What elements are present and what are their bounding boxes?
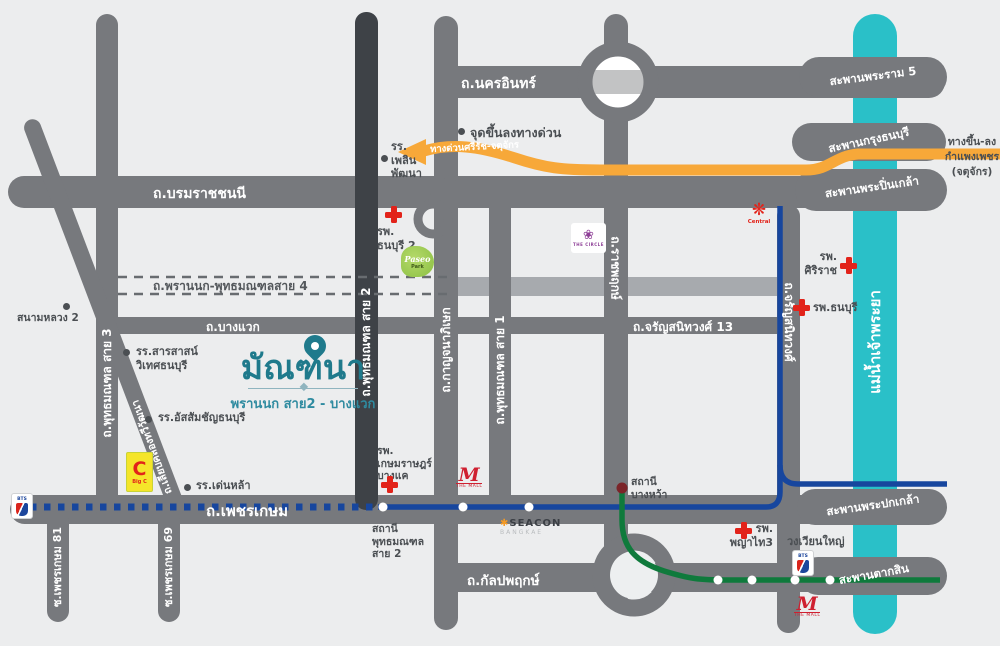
label-road-charan-sanitwong: ถ.จรัญสนิทวงศ์ [781, 247, 797, 397]
hospital-cross-thonburi2-icon [385, 206, 402, 223]
brand-subtitle: พรานนก สาย2 - บางแวก [228, 393, 378, 414]
label-sanam-luang2: สนามหลวง 2 [17, 312, 79, 326]
expressway-entry-dot [458, 128, 465, 135]
label-road-phutthamonthon-sai3: ถ.พุทธมณฑล สาย 3 [99, 291, 115, 475]
label-road-borommaratchachonnani: ถ.บรมราชชนนี [153, 183, 246, 205]
brand-divider [248, 388, 358, 389]
the-mall-thaphra-logo: M THE MALL [794, 597, 820, 618]
label-road-soi-phetkasem-69: ซ.เพชรเกษม 69 [161, 513, 177, 621]
label-road-kanchanaphisek: ถ.กาญจนาภิเษก [438, 255, 454, 445]
seacon-bangkae-logo: ✱SEACON BANGKAE [500, 518, 561, 536]
label-denla-school: รร.เด่นหล้า [196, 479, 251, 493]
label-station-phutthamonthon-sai2: สถานีพุทธมณฑลสาย 2 [372, 523, 424, 561]
paseo-park-logo: Paseo Park [401, 246, 434, 277]
mrt-station-logo: BTS [11, 493, 33, 519]
label-road-charan-sanitwong-13: ถ.จรัญสนิทวงศ์ 13 [633, 318, 733, 337]
label-road-phutthamonthon-sai1: ถ.พุทธมณฑล สาย 1 [492, 280, 508, 460]
label-expressway-entry: จุดขึ้นลงทางด่วน [470, 123, 561, 143]
transit-emblem-icon [797, 560, 809, 573]
label-plearn-school: รร.เพลินพัฒนา [391, 140, 422, 181]
label-road-bang-waek: ถ.บางแวก [206, 318, 260, 337]
hospital-cross-siriraj-icon [840, 257, 857, 274]
label-station-bang-wa: สถานีบางหว้า [631, 476, 667, 501]
label-road-nakhon-in: ถ.นครอินทร์ [461, 73, 536, 95]
label-road-phetkasem: ถ.เพชรเกษม [206, 499, 288, 523]
label-hospital-siriraj: รพ.ศิริราช [799, 250, 837, 277]
central-logo: ❋ Central [746, 202, 772, 225]
big-c-logo: C Big C [126, 452, 153, 492]
label-road-soi-phetkasem-81: ซ.เพชรเกษม 81 [50, 513, 66, 621]
flower-icon: ❀ [583, 229, 594, 242]
label-sarasas-school: รร.สารสาสน์วิเทศธนบุรี [136, 345, 198, 372]
label-road-phran-nok-sai4: ถ.พรานนก-พุทธมณฑลสาย 4 [153, 277, 308, 296]
label-hospital-thonburi: รพ.ธนบุรี [813, 301, 857, 315]
denla-school-dot [184, 484, 191, 491]
label-road-kanlapaphruek: ถ.กัลปพฤกษ์ [467, 569, 539, 591]
plearn-school-dot [381, 155, 388, 162]
assumption-school-dot [145, 416, 152, 423]
hospital-cross-thonburi-icon [793, 299, 810, 316]
the-circle-logo: ❀ THE CIRCLE [571, 223, 606, 253]
starburst-icon: ❋ [746, 202, 772, 219]
sarasas-school-dot [123, 349, 130, 356]
sanam-luang2-dot [63, 303, 70, 310]
seacon-star-icon: ✱ [500, 518, 509, 529]
hospital-cross-kasemrad-icon [381, 476, 398, 493]
label-river-chao-phraya: แม่น้ำเจ้าพระยา [867, 237, 883, 447]
road-borommaratchachonnani [8, 176, 925, 208]
label-hospital-phayathai3: รพ.พญาไท3 [699, 522, 773, 549]
transit-emblem-icon [16, 503, 28, 516]
label-wongwian-yai: วงเวียนใหญ่ [787, 535, 844, 549]
label-ramp-kamphaengphet: ทางขึ้น-ลง กำแพงเพชร (จตุจักร) [944, 135, 1000, 180]
bts-wongwian-yai-logo: BTS [792, 550, 814, 576]
the-mall-bangkae-logo: M THE MALL [456, 468, 482, 489]
label-road-ratchaphruek: ถ.ราชพฤกษ์ [608, 216, 624, 321]
bangkok-location-map: ถ.นครอินทร์ ถ.บรมราชชนนี ถ.พรานนก-พุทธมณ… [0, 0, 1000, 646]
